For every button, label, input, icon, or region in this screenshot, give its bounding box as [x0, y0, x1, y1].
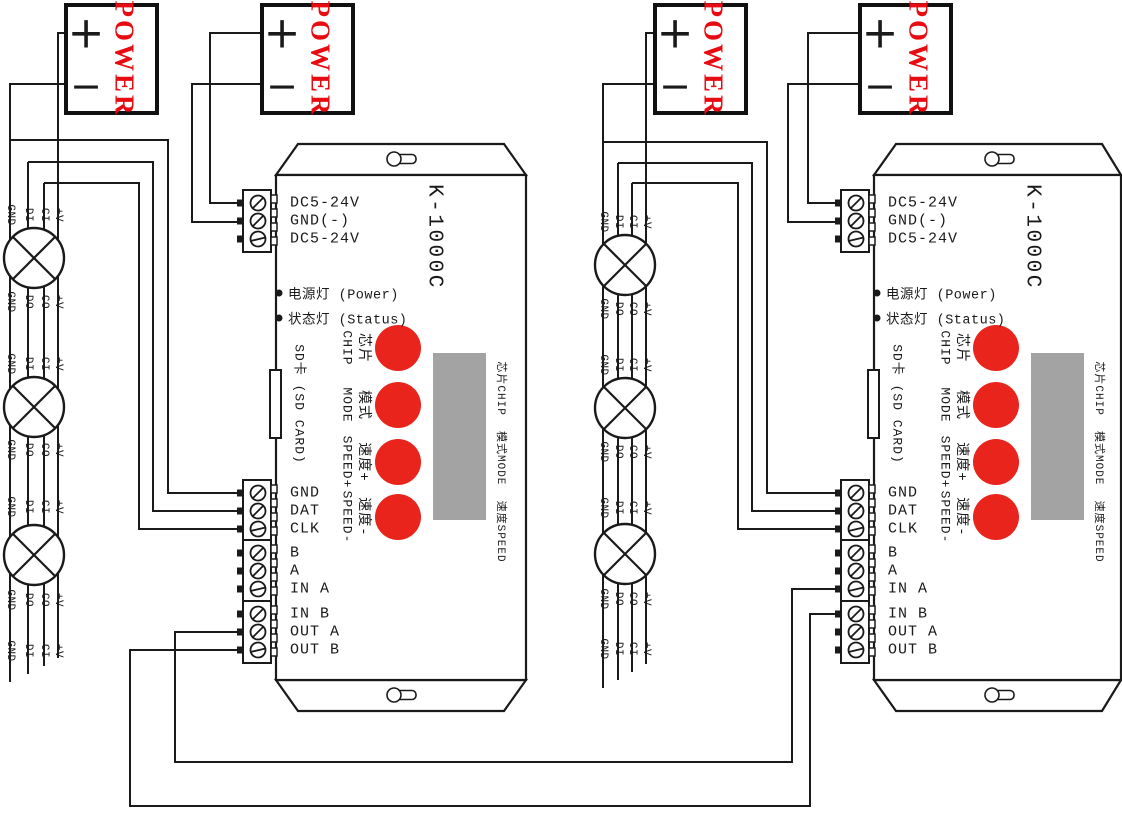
- pin-label: +V: [640, 215, 652, 229]
- io-terminal-label: A: [290, 563, 300, 580]
- pin-label: +V: [52, 208, 64, 222]
- terminal-block-io-a-1: [237, 540, 277, 602]
- led-module: [4, 525, 64, 585]
- mode-button-label-en: MODE: [340, 387, 355, 422]
- pin-label: DI: [22, 208, 34, 222]
- pin-label: DI: [22, 357, 34, 371]
- speed-plus-button-label-cn: 速度+: [355, 442, 375, 481]
- led-module: [4, 228, 64, 288]
- power-label: POWER: [305, 0, 336, 117]
- mode-button: [375, 382, 421, 428]
- chip-button-label-cn: 芯片: [355, 333, 375, 363]
- chip-button-label-en: CHIP: [340, 330, 355, 365]
- led-module: [595, 235, 655, 295]
- dc-terminal-label: DC5-24V: [290, 231, 360, 248]
- dc-terminal-label: GND(-): [888, 213, 948, 230]
- io-terminal-label: IN A: [888, 581, 928, 598]
- terminal-block-io-b-2: [835, 601, 875, 663]
- status-led-dot: [874, 315, 881, 322]
- pin-label: CI: [626, 215, 638, 229]
- plus-terminal: +: [862, 8, 899, 59]
- pin-label: DI: [612, 642, 624, 656]
- pin-label: +V: [52, 500, 64, 514]
- chip-button-label-en: CHIP: [938, 330, 953, 365]
- signal-terminal-label: DAT: [888, 503, 918, 520]
- model-label: K-1000C: [423, 184, 446, 290]
- terminal-block-dc-1: [237, 190, 277, 252]
- pin-label: +V: [52, 295, 64, 309]
- mode-button: [973, 382, 1019, 428]
- chip-button-label-cn: 芯片: [953, 333, 973, 363]
- pin-label: CO: [626, 302, 638, 316]
- pin-label: GND: [597, 638, 609, 659]
- io-terminal-label: A: [888, 563, 898, 580]
- lcd-side-label: 芯片CHIP 模式MODE 速度SPEED: [494, 361, 510, 562]
- io-terminal-label: IN A: [290, 581, 330, 598]
- pin-label: GND: [4, 353, 16, 374]
- pin-label: GND: [597, 588, 609, 609]
- speed-minus-button: [375, 494, 421, 540]
- signal-terminal-label: CLK: [888, 521, 918, 538]
- pin-label: +V: [52, 443, 64, 457]
- signal-terminal-label: GND: [888, 485, 918, 502]
- speed-minus-button-label-cn: 速度-: [355, 497, 375, 536]
- wire-left-ci-to-clk: [44, 183, 243, 529]
- pin-label: GND: [597, 441, 609, 462]
- dc-terminal-label: DC5-24V: [290, 195, 360, 212]
- mode-button-label-cn: 模式: [953, 390, 973, 420]
- sd-card-slot: [270, 370, 281, 438]
- pin-label: CI: [38, 357, 50, 371]
- plus-terminal: +: [657, 8, 694, 59]
- pin-label: CO: [38, 593, 50, 607]
- led-module: [4, 377, 64, 437]
- speed-plus-button: [973, 439, 1019, 485]
- wire-right-gnd-to-controller: [603, 142, 841, 493]
- terminal-block-io-a-2: [835, 540, 875, 602]
- minus-terminal: −: [70, 64, 102, 108]
- power-label: POWER: [109, 0, 140, 117]
- dc-terminal-label: DC5-24V: [888, 231, 958, 248]
- speed-minus-button-label-en: SPEED-: [938, 491, 953, 544]
- pin-label: GND: [597, 354, 609, 375]
- io-terminal-label: IN B: [888, 606, 928, 623]
- power-indicator-label: 电源灯 (Power): [886, 283, 997, 304]
- mounting-keyhole: [387, 688, 416, 702]
- pin-label: CO: [38, 443, 50, 457]
- terminal-block-signal-1: [237, 480, 277, 542]
- wire-power2-plus-to-dc: [210, 33, 260, 203]
- pin-label: CO: [626, 592, 638, 606]
- speed-plus-button-label-cn: 速度+: [953, 442, 973, 481]
- model-label: K-1000C: [1021, 184, 1044, 290]
- pin-label: DO: [22, 593, 34, 607]
- pin-label: DI: [612, 215, 624, 229]
- pin-label: CI: [38, 500, 50, 514]
- pin-label: GND: [4, 496, 16, 517]
- speed-minus-button: [973, 494, 1019, 540]
- power-label: POWER: [698, 0, 729, 117]
- status-indicator-label: 状态灯 (Status): [288, 308, 407, 329]
- minus-terminal: −: [659, 64, 691, 108]
- io-terminal-label: IN B: [290, 606, 330, 623]
- speed-plus-button-label-en: SPEED+: [938, 436, 953, 489]
- wiring-diagram: + − POWER + − POWER + − POWER + − POWER …: [0, 0, 1122, 816]
- io-terminal-label: OUT A: [888, 624, 938, 641]
- wire-power4-plus-to-dc: [808, 33, 858, 203]
- power-label: POWER: [903, 0, 934, 117]
- io-terminal-label: OUT A: [290, 624, 340, 641]
- pin-label: DO: [22, 295, 34, 309]
- pin-label: +V: [52, 593, 64, 607]
- status-indicator-label: 状态灯 (Status): [886, 308, 1005, 329]
- pin-label: DO: [612, 302, 624, 316]
- sd-slot-label: SD卡 (SD CARD): [292, 344, 311, 464]
- terminal-block-signal-2: [835, 480, 875, 542]
- pin-label: +V: [52, 644, 64, 658]
- pin-label: +V: [640, 302, 652, 316]
- terminal-block-dc-2: [835, 190, 875, 252]
- pin-label: DO: [612, 445, 624, 459]
- lcd-display: [1031, 353, 1084, 520]
- power-led-dot: [276, 290, 283, 297]
- status-led-dot: [276, 315, 283, 322]
- pin-label: GND: [4, 640, 16, 661]
- dc-terminal-label: GND(-): [290, 213, 350, 230]
- mode-button-label-en: MODE: [938, 387, 953, 422]
- pin-label: +V: [640, 445, 652, 459]
- pin-label: +V: [640, 358, 652, 372]
- pin-label: GND: [4, 439, 16, 460]
- io-terminal-label: OUT B: [290, 642, 340, 659]
- pin-label: DI: [612, 501, 624, 515]
- pin-label: +V: [640, 592, 652, 606]
- pin-label: DI: [22, 644, 34, 658]
- pin-label: DI: [22, 500, 34, 514]
- pin-label: CI: [38, 644, 50, 658]
- power-led-dot: [874, 290, 881, 297]
- speed-minus-button-label-cn: 速度-: [953, 497, 973, 536]
- pin-label: CO: [626, 445, 638, 459]
- pin-label: +V: [640, 642, 652, 656]
- pin-label: CI: [626, 642, 638, 656]
- signal-terminal-label: GND: [290, 485, 320, 502]
- speed-plus-button-label-en: SPEED+: [340, 436, 355, 489]
- power-indicator-label: 电源灯 (Power): [288, 283, 399, 304]
- pin-label: GND: [4, 204, 16, 225]
- signal-terminal-label: CLK: [290, 521, 320, 538]
- lcd-display: [433, 353, 486, 520]
- led-module: [595, 378, 655, 438]
- io-terminal-label: OUT B: [888, 642, 938, 659]
- pin-label: DO: [612, 592, 624, 606]
- pin-label: GND: [597, 497, 609, 518]
- pin-label: DI: [612, 358, 624, 372]
- mounting-keyhole: [387, 152, 416, 166]
- pin-label: +V: [640, 501, 652, 515]
- io-terminal-label: B: [290, 545, 300, 562]
- chip-button: [973, 325, 1019, 371]
- plus-terminal: +: [264, 8, 301, 59]
- pin-label: CI: [626, 501, 638, 515]
- mode-button-label-cn: 模式: [355, 390, 375, 420]
- wire-right-ci-to-clk: [632, 183, 841, 529]
- pin-label: DO: [22, 443, 34, 457]
- sd-slot-label: SD卡 (SD CARD): [890, 344, 909, 464]
- pin-label: CI: [38, 208, 50, 222]
- pin-label: CI: [626, 358, 638, 372]
- mounting-keyhole: [985, 688, 1014, 702]
- mounting-keyhole: [985, 152, 1014, 166]
- dc-terminal-label: DC5-24V: [888, 195, 958, 212]
- io-terminal-label: B: [888, 545, 898, 562]
- pin-label: GND: [4, 291, 16, 312]
- minus-terminal: −: [864, 64, 896, 108]
- pin-label: +V: [52, 357, 64, 371]
- chip-button: [375, 325, 421, 371]
- plus-terminal: +: [68, 8, 105, 59]
- led-module: [595, 524, 655, 584]
- speed-plus-button: [375, 439, 421, 485]
- minus-terminal: −: [266, 64, 298, 108]
- sd-card-slot: [868, 370, 879, 438]
- speed-minus-button-label-en: SPEED-: [340, 491, 355, 544]
- pin-label: CO: [38, 295, 50, 309]
- lcd-side-label: 芯片CHIP 模式MODE 速度SPEED: [1092, 361, 1108, 562]
- pin-label: GND: [597, 298, 609, 319]
- pin-label: GND: [4, 589, 16, 610]
- terminal-block-io-b-1: [237, 601, 277, 663]
- signal-terminal-label: DAT: [290, 503, 320, 520]
- pin-label: GND: [597, 211, 609, 232]
